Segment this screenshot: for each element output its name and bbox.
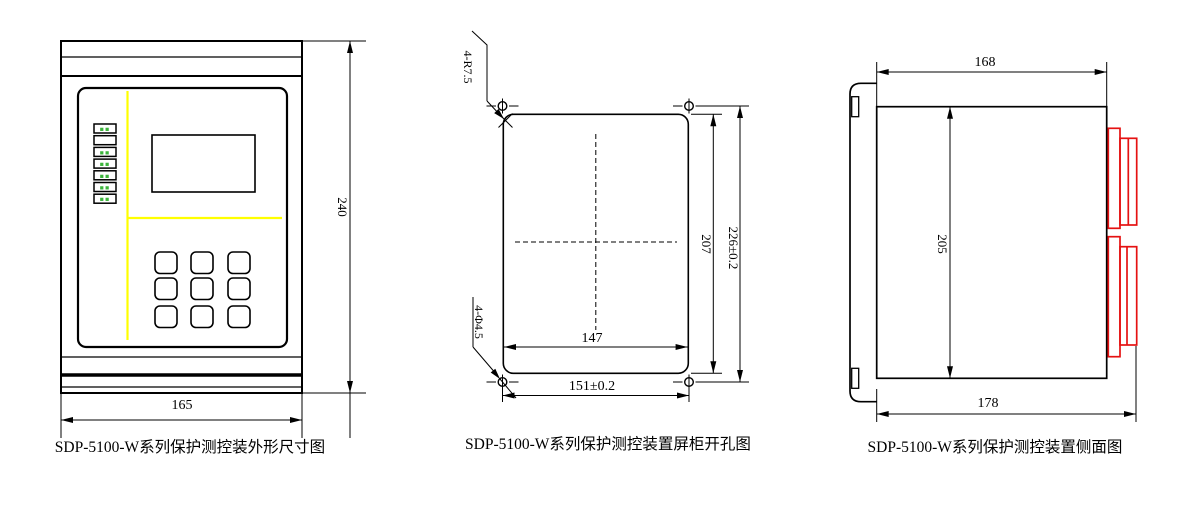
front-view-caption: SDP-5100-W系列保护测控装外形尺寸图: [55, 438, 325, 456]
dimension-hole-span-226: 226±0.2: [726, 106, 743, 382]
dim-value: 207: [699, 234, 714, 254]
front-view: ▪▪ ▪▪ ▪▪ ▪▪ ▪▪ ▪▪: [55, 41, 366, 456]
side-view: 168 205 178 SDP-5100-W系列保护测控装置侧面图: [850, 55, 1137, 456]
keypad-key: [228, 278, 250, 300]
led-label: ▪▪: [100, 148, 111, 156]
keypad-key: [155, 306, 177, 328]
led-indicators: ▪▪ ▪▪ ▪▪ ▪▪ ▪▪ ▪▪: [94, 124, 116, 203]
led-label: ▪▪: [100, 172, 111, 180]
cutout-view: 4-R7.5 4-Φ4.5 147 151±0.2: [461, 31, 751, 453]
dimension-height-240: 240: [302, 41, 366, 393]
dimension-cutout-width-147: 147: [504, 331, 688, 350]
dim-value: 178: [978, 396, 999, 411]
connector-block: [1120, 247, 1137, 345]
dim-value: 240: [335, 197, 350, 217]
cad-drawing-svg: ▪▪ ▪▪ ▪▪ ▪▪ ▪▪ ▪▪: [0, 0, 1200, 511]
mounting-hole-bottom-right: [673, 375, 749, 390]
dimension-total-depth-178: 178: [877, 346, 1136, 422]
leader-note: 4-Φ4.5: [472, 305, 486, 339]
flange-notch-top: [852, 97, 859, 117]
lcd-screen: [152, 135, 255, 192]
keypad-key: [228, 252, 250, 274]
flange-notch-bottom: [852, 368, 859, 388]
keypad-key: [191, 252, 213, 274]
dimension-cutout-height-207: 207: [691, 114, 722, 373]
dim-value: 165: [172, 398, 193, 413]
keypad-key: [155, 252, 177, 274]
keypad-key: [228, 306, 250, 328]
dimension-height-205: 205: [935, 107, 953, 379]
connector-block: [1108, 128, 1120, 228]
keypad: [155, 252, 250, 328]
leader-corner-radius: 4-R7.5: [461, 31, 513, 128]
dimension-width-165: 165: [61, 393, 350, 438]
dim-value: 226±0.2: [726, 227, 741, 270]
keypad-key: [191, 306, 213, 328]
leader-note: 4-R7.5: [461, 51, 475, 84]
led-indicator: [94, 136, 116, 145]
side-view-caption: SDP-5100-W系列保护测控装置侧面图: [868, 438, 1123, 456]
dim-value: 151±0.2: [569, 379, 615, 394]
cutout-view-caption: SDP-5100-W系列保护测控装置屏柜开孔图: [465, 435, 751, 453]
dimension-depth-168: 168: [877, 55, 1107, 107]
led-label: ▪▪: [100, 195, 111, 203]
mounting-hole-top-right: [673, 99, 749, 114]
keypad-key: [155, 278, 177, 300]
keypad-key: [191, 278, 213, 300]
rear-connectors: [1108, 128, 1136, 356]
dim-value: 205: [935, 234, 950, 254]
dimension-hole-span-151: 151±0.2: [503, 379, 690, 402]
front-flange: [850, 83, 877, 401]
side-body: [877, 107, 1107, 379]
led-label: ▪▪: [100, 160, 111, 168]
led-label: ▪▪: [100, 184, 111, 192]
drawing-sheet: ▪▪ ▪▪ ▪▪ ▪▪ ▪▪ ▪▪: [0, 0, 1200, 511]
dim-value: 168: [975, 55, 996, 70]
led-label: ▪▪: [100, 125, 111, 133]
dim-value: 147: [582, 331, 603, 346]
connector-block: [1108, 237, 1120, 357]
